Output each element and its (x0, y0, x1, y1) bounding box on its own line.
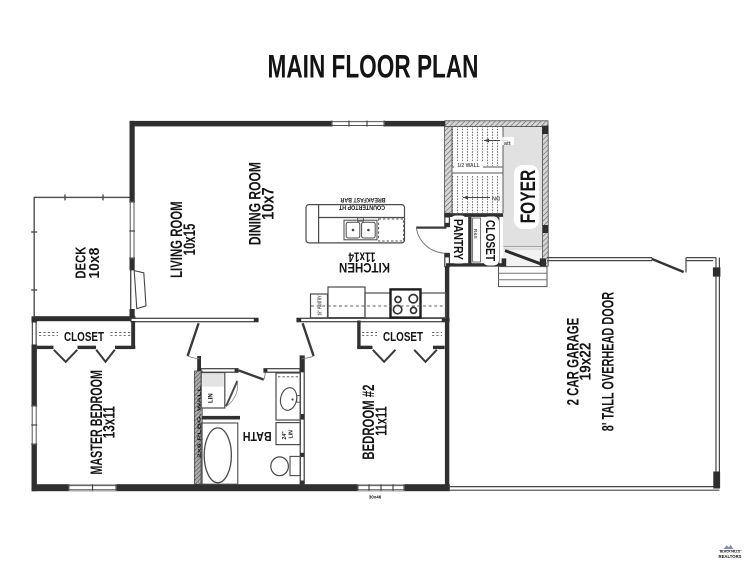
svg-text:10x7: 10x7 (260, 187, 278, 220)
svg-text:LIN: LIN (289, 430, 295, 439)
svg-text:8' TALL OVERHEAD DOOR: 8' TALL OVERHEAD DOOR (600, 292, 618, 431)
svg-text:30x46: 30x46 (369, 495, 382, 500)
svg-text:13x11: 13x11 (100, 406, 118, 438)
svg-text:10x15: 10x15 (181, 224, 199, 256)
svg-text:REALTORS: REALTORS (719, 554, 742, 559)
svg-text:MAIN FLOOR PLAN: MAIN FLOOR PLAN (268, 49, 479, 85)
svg-text:att: att (504, 141, 511, 147)
svg-text:CLOSET: CLOSET (483, 220, 498, 261)
svg-text:11x11: 11x11 (373, 406, 390, 436)
svg-text:CLOSET: CLOSET (383, 329, 423, 344)
svg-text:BREAKFAST BAR: BREAKFAST BAR (340, 196, 385, 203)
svg-text:11x14: 11x14 (348, 249, 375, 264)
svg-text:24": 24" (282, 431, 288, 440)
svg-text:LIN: LIN (209, 393, 215, 403)
svg-text:19x22: 19x22 (578, 343, 595, 381)
svg-text:10x8: 10x8 (86, 248, 103, 279)
svg-text:R&S: R&S (473, 229, 478, 239)
svg-text:BATH: BATH (243, 429, 272, 444)
svg-text:CLOSET: CLOSET (64, 329, 104, 344)
svg-text:COUNTERTOP HT: COUNTERTOP HT (338, 204, 385, 211)
svg-text:16" PANTRY: 16" PANTRY (318, 295, 324, 315)
svg-text:PANTRY: PANTRY (451, 219, 466, 260)
svg-text:1/2 WALL: 1/2 WALL (457, 163, 480, 169)
svg-text:DN: DN (492, 195, 500, 201)
svg-text:FOYER: FOYER (516, 169, 540, 223)
